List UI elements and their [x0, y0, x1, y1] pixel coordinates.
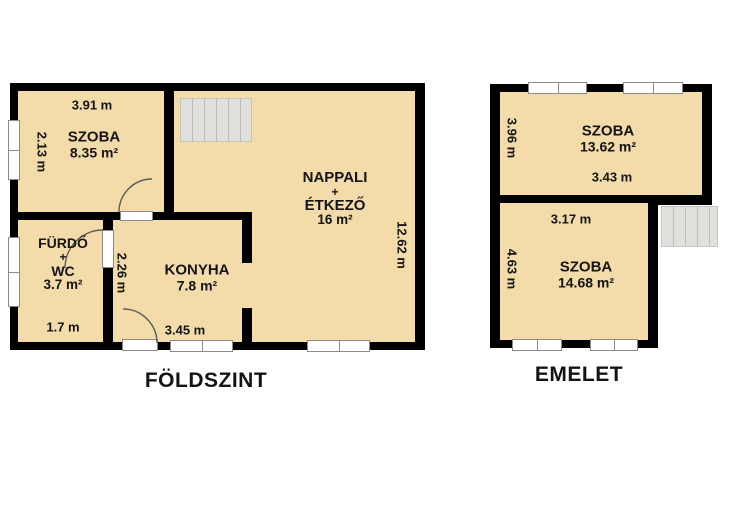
- window-divider: [339, 341, 340, 351]
- dim-szoba-felso-height: 3.96 m: [505, 118, 520, 158]
- dim-nappali-height: 12.62 m: [395, 221, 410, 269]
- dim-szoba-height: 2.13 m: [35, 132, 50, 172]
- wall-konyha-nappali-upper: [242, 220, 252, 263]
- dim-konyha-height: 2.26 m: [115, 253, 130, 293]
- wall-konyha-top: [152, 212, 252, 220]
- dim-szoba-width: 3.91 m: [72, 98, 112, 113]
- room-name: FÜRDŐ: [38, 236, 88, 250]
- staircase-foldszint: [180, 98, 252, 142]
- window-szoba-left: [8, 120, 20, 180]
- dim-szoba-also-width: 3.17 m: [551, 212, 591, 227]
- window-emelet-top-2: [623, 82, 683, 94]
- window-nappali-bottom: [307, 340, 370, 352]
- room-area: 13.62 m²: [580, 140, 636, 155]
- room-name: KONYHA: [164, 263, 229, 279]
- wall-konyha-nappali-lower: [242, 308, 252, 342]
- window-emelet-bottom-1: [512, 339, 562, 351]
- room-area: 16 m²: [303, 213, 368, 227]
- wall-szoba-nappali: [164, 91, 174, 220]
- room-label-konyha: KONYHA 7.8 m²: [164, 263, 229, 294]
- room-area: 14.68 m²: [558, 276, 614, 291]
- dim-szoba-felso-width: 3.43 m: [592, 170, 632, 185]
- floor-plan-canvas: 3.91 m 2.13 m 1.7 m 2.26 m 3.45 m 12.62 …: [0, 0, 730, 516]
- room-label-szoba-felso: SZOBA 13.62 m²: [580, 124, 636, 155]
- room-area: 3.7 m²: [38, 278, 88, 292]
- dim-furdo-width: 1.7 m: [46, 320, 79, 335]
- room-name: SZOBA: [558, 260, 614, 276]
- window-divider: [202, 341, 203, 351]
- dim-konyha-width: 3.45 m: [165, 323, 205, 338]
- door-arc-konyha-entry: [122, 308, 159, 345]
- window-divider: [558, 83, 559, 93]
- room-area: 7.8 m²: [164, 279, 229, 294]
- wall-furdo-konyha-lower: [103, 268, 113, 342]
- window-konyha-bottom: [170, 340, 233, 352]
- window-furdo-left: [8, 237, 20, 307]
- room-name: WC: [38, 264, 88, 278]
- window-emelet-top-1: [528, 82, 587, 94]
- room-label-furdo-wc: FÜRDŐ + WC 3.7 m²: [38, 236, 88, 292]
- room-name: ÉTKEZŐ: [303, 199, 368, 213]
- room-label-nappali-etkezo: NAPPALI + ÉTKEZŐ 16 m²: [303, 171, 368, 227]
- window-divider: [537, 340, 538, 350]
- window-divider: [653, 83, 654, 93]
- door-arc-szoba: [118, 178, 155, 214]
- staircase-emelet: [661, 206, 718, 247]
- window-divider: [9, 272, 19, 273]
- plus-sign: +: [38, 250, 88, 264]
- room-name: SZOBA: [68, 130, 121, 146]
- window-divider: [614, 340, 615, 350]
- floor-title-emelet: EMELET: [535, 363, 623, 387]
- room-label-szoba-also: SZOBA 14.68 m²: [558, 260, 614, 291]
- room-area: 8.35 m²: [68, 146, 121, 161]
- wall-szoba-bottom-left: [18, 212, 122, 220]
- window-divider: [9, 150, 19, 151]
- dim-szoba-also-height: 4.63 m: [505, 249, 520, 289]
- room-label-szoba-foldszint: SZOBA 8.35 m²: [68, 130, 121, 161]
- floor-title-foldszint: FÖLDSZINT: [145, 369, 267, 393]
- window-emelet-bottom-2: [590, 339, 638, 351]
- room-name: NAPPALI: [303, 171, 368, 185]
- room-name: SZOBA: [580, 124, 636, 140]
